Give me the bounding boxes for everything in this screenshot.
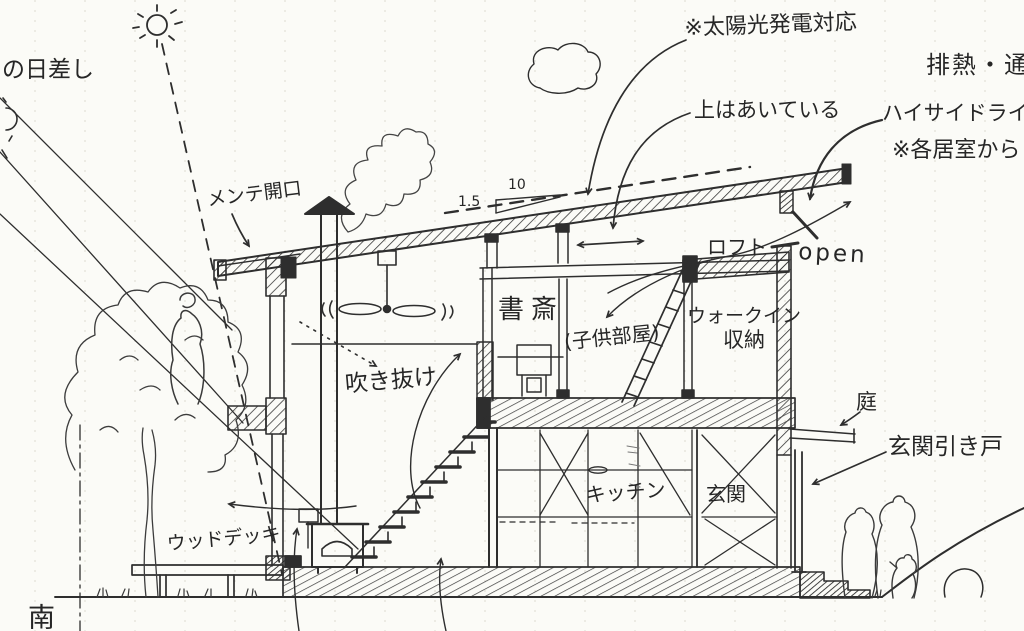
entrance-sliding-door-label: 玄関引き戸 — [888, 434, 1003, 460]
stairs — [345, 415, 495, 567]
entrance-canopy — [790, 429, 855, 443]
high-side-arrow — [810, 120, 882, 199]
cloud — [528, 43, 600, 93]
porch-steps — [800, 572, 870, 598]
high-side-light-label: ハイサイドライト — [882, 101, 1024, 125]
slope-mark — [496, 195, 560, 213]
people-figures — [842, 496, 918, 598]
top-open-note-label: 上はあいている — [694, 98, 840, 122]
walk-in-line1: ウォークイン — [684, 306, 804, 328]
smoke — [341, 129, 434, 232]
hill-slope — [882, 508, 1024, 597]
entrance-door-arrow — [813, 452, 886, 484]
ceiling-fan-icon — [322, 251, 453, 320]
second-floor-slab — [477, 398, 795, 428]
sun-icon — [133, 5, 182, 47]
exhaust-note-label: 排熱・通 — [926, 52, 1024, 80]
roof-double-arrow — [578, 241, 643, 245]
loft-label: ロフト — [707, 236, 767, 259]
study-label: 書斎 — [498, 296, 564, 326]
entrance-label: 玄関 — [706, 483, 746, 506]
first-floor-slab — [283, 556, 800, 597]
garden-label: 庭 — [856, 390, 877, 414]
sliding-door — [792, 450, 806, 572]
each-room-note-label: ※各居室から — [892, 138, 1020, 163]
desk — [498, 345, 563, 396]
walk-in-line2: 収納 — [684, 328, 804, 352]
south-label: 南 — [28, 603, 55, 631]
wood-deck — [132, 565, 283, 597]
winter-sun-rays — [0, 98, 358, 549]
summer-sun-ray — [162, 44, 282, 574]
sun-note-label: の日差し — [2, 57, 94, 83]
slope-rise-label: 1.5 — [458, 194, 480, 210]
balcony — [228, 406, 266, 430]
open-label: open — [798, 239, 869, 269]
slope-run-label: 10 — [508, 177, 526, 193]
void-edge-beam — [477, 342, 493, 400]
walk-in-closet-label: ウォークイン 収納 — [684, 306, 804, 352]
sketch-canvas: の日差し ※太陽光発電対応 排熱・通 上はあいている ハイサイドライト ※各居室… — [0, 0, 1024, 631]
wood-stove — [299, 509, 368, 573]
solar-leader-arrow — [588, 40, 686, 194]
stone — [944, 569, 982, 597]
